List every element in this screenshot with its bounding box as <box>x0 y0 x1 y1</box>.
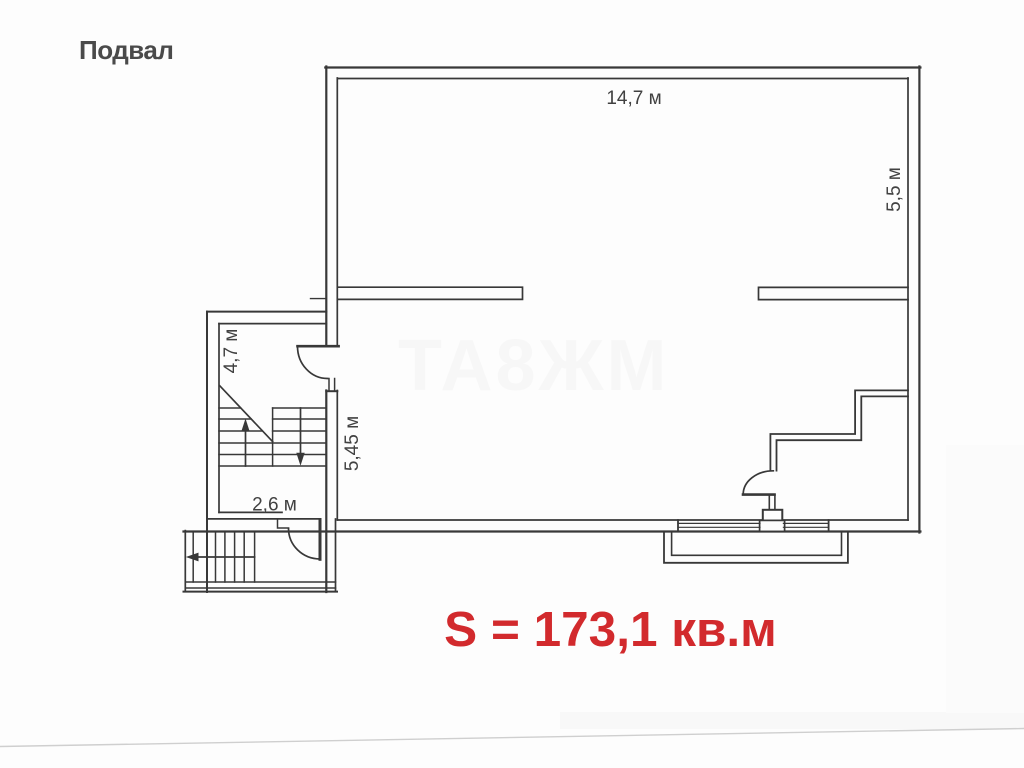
svg-text:4,7 м: 4,7 м <box>221 329 242 374</box>
svg-text:5,5 м: 5,5 м <box>884 167 905 212</box>
svg-text:Подвал: Подвал <box>79 35 173 65</box>
svg-text:ТА8ЖМ: ТА8ЖМ <box>398 326 670 406</box>
svg-text:S = 173,1 кв.м: S = 173,1 кв.м <box>444 602 777 657</box>
svg-text:14,7 м: 14,7 м <box>606 88 661 109</box>
svg-text:2,6 м: 2,6 м <box>252 495 297 516</box>
svg-text:5,45 м: 5,45 м <box>342 416 363 471</box>
